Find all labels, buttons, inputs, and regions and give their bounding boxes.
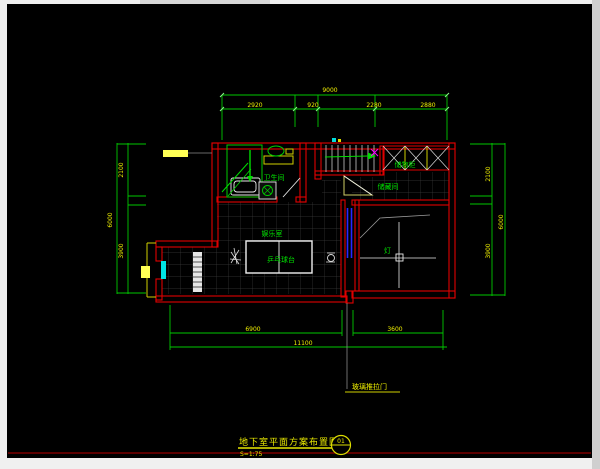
window-glass bbox=[161, 261, 166, 279]
floor-plan-drawing: 卫生间 储藏间 储物柜 娱乐室 乒乓球台 灯 bbox=[0, 0, 600, 469]
door-leader-label: 玻璃推拉门 bbox=[352, 382, 387, 391]
dim-left-overall: 6000 bbox=[107, 212, 114, 227]
cad-viewport[interactable]: 卫生间 储藏间 储物柜 娱乐室 乒乓球台 灯 bbox=[0, 0, 600, 469]
room-label-cabinet: 储物柜 bbox=[395, 160, 416, 169]
room-label-bathroom: 卫生间 bbox=[264, 173, 285, 182]
dim-left-1: 2100 bbox=[118, 162, 125, 177]
dim-bottom-2: 3600 bbox=[387, 326, 402, 333]
drawing-title: 地下室平面方案布置图 bbox=[239, 436, 339, 448]
dim-right-1: 2100 bbox=[485, 166, 492, 181]
table-label: 乒乓球台 bbox=[267, 255, 295, 264]
room-label-understair: 储藏间 bbox=[378, 182, 399, 191]
window-frame-right bbox=[592, 0, 600, 469]
window-frame-shade bbox=[140, 0, 270, 4]
drawing-scale: S=1:75 bbox=[240, 451, 262, 458]
dim-top-1: 2920 bbox=[247, 102, 262, 109]
level-marker-dot bbox=[338, 139, 341, 142]
highlighted-dim-text-v[interactable] bbox=[141, 266, 150, 278]
dim-top-overall: 9000 bbox=[322, 87, 337, 94]
room-label-hall: 娱乐室 bbox=[262, 229, 283, 238]
dim-top-3: 2280 bbox=[366, 102, 381, 109]
washing-machine-icon bbox=[259, 182, 276, 199]
dim-right-2: 3900 bbox=[485, 243, 492, 258]
highlighted-dim-text[interactable] bbox=[163, 150, 188, 157]
dim-top-4: 2880 bbox=[420, 102, 435, 109]
dim-top-2: 920 bbox=[307, 102, 319, 109]
bubble-number: 01 bbox=[337, 438, 345, 445]
dim-bottom-1: 6900 bbox=[245, 326, 260, 333]
drawing-number-bubble: 01 bbox=[332, 436, 351, 455]
room-label-lamp: 灯 bbox=[384, 246, 391, 255]
dim-left-2: 3900 bbox=[118, 243, 125, 258]
dim-right-overall: 6000 bbox=[498, 214, 505, 229]
radiator bbox=[193, 252, 202, 292]
dim-bottom-overall: 11100 bbox=[293, 340, 312, 347]
level-marker-icon bbox=[332, 138, 336, 142]
